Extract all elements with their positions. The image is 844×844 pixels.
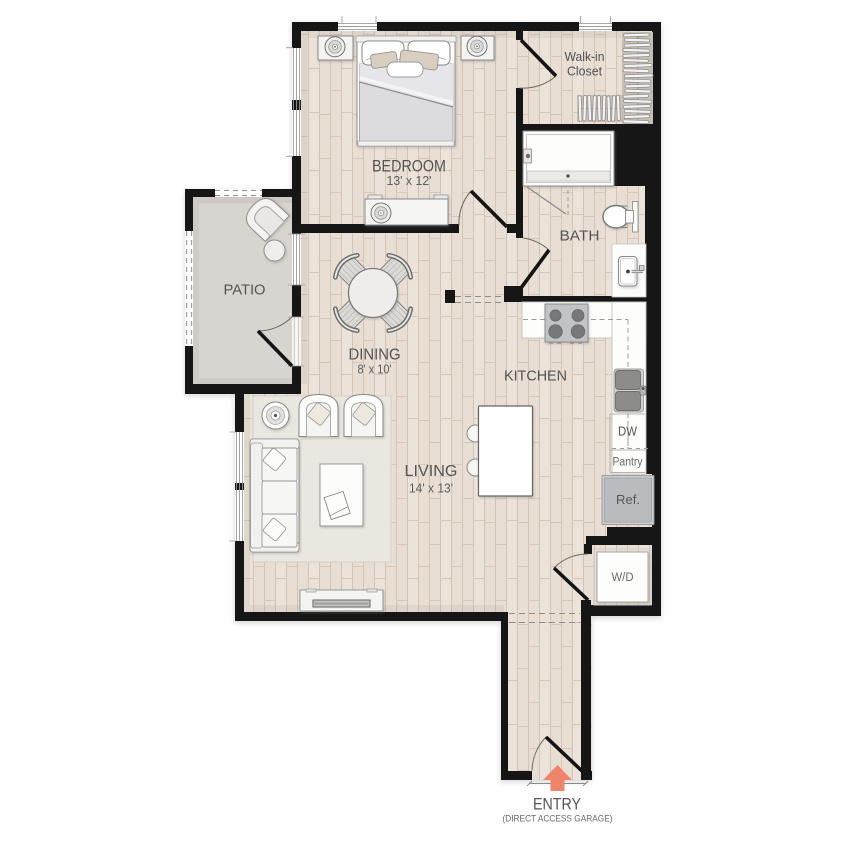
svg-text:Walk-in: Walk-in: [565, 50, 605, 64]
svg-text:Pantry: Pantry: [613, 457, 643, 469]
svg-text:LIVING: LIVING: [405, 463, 458, 480]
svg-text:Closet: Closet: [567, 65, 603, 79]
svg-text:DW: DW: [618, 424, 638, 439]
svg-text:13' x 12': 13' x 12': [387, 173, 432, 188]
svg-text:PATIO: PATIO: [224, 282, 266, 299]
svg-text:DINING: DINING: [349, 347, 401, 364]
svg-text:8' x 10': 8' x 10': [358, 363, 392, 377]
svg-text:KITCHEN: KITCHEN: [504, 368, 567, 385]
svg-text:Ref.: Ref.: [616, 492, 640, 507]
svg-text:W/D: W/D: [612, 572, 634, 584]
svg-text:BATH: BATH: [560, 228, 600, 245]
svg-text:14' x 13': 14' x 13': [409, 482, 453, 496]
svg-text:ENTRY: ENTRY: [533, 796, 581, 814]
svg-text:(DIRECT ACCESS GARAGE): (DIRECT ACCESS GARAGE): [503, 814, 613, 824]
